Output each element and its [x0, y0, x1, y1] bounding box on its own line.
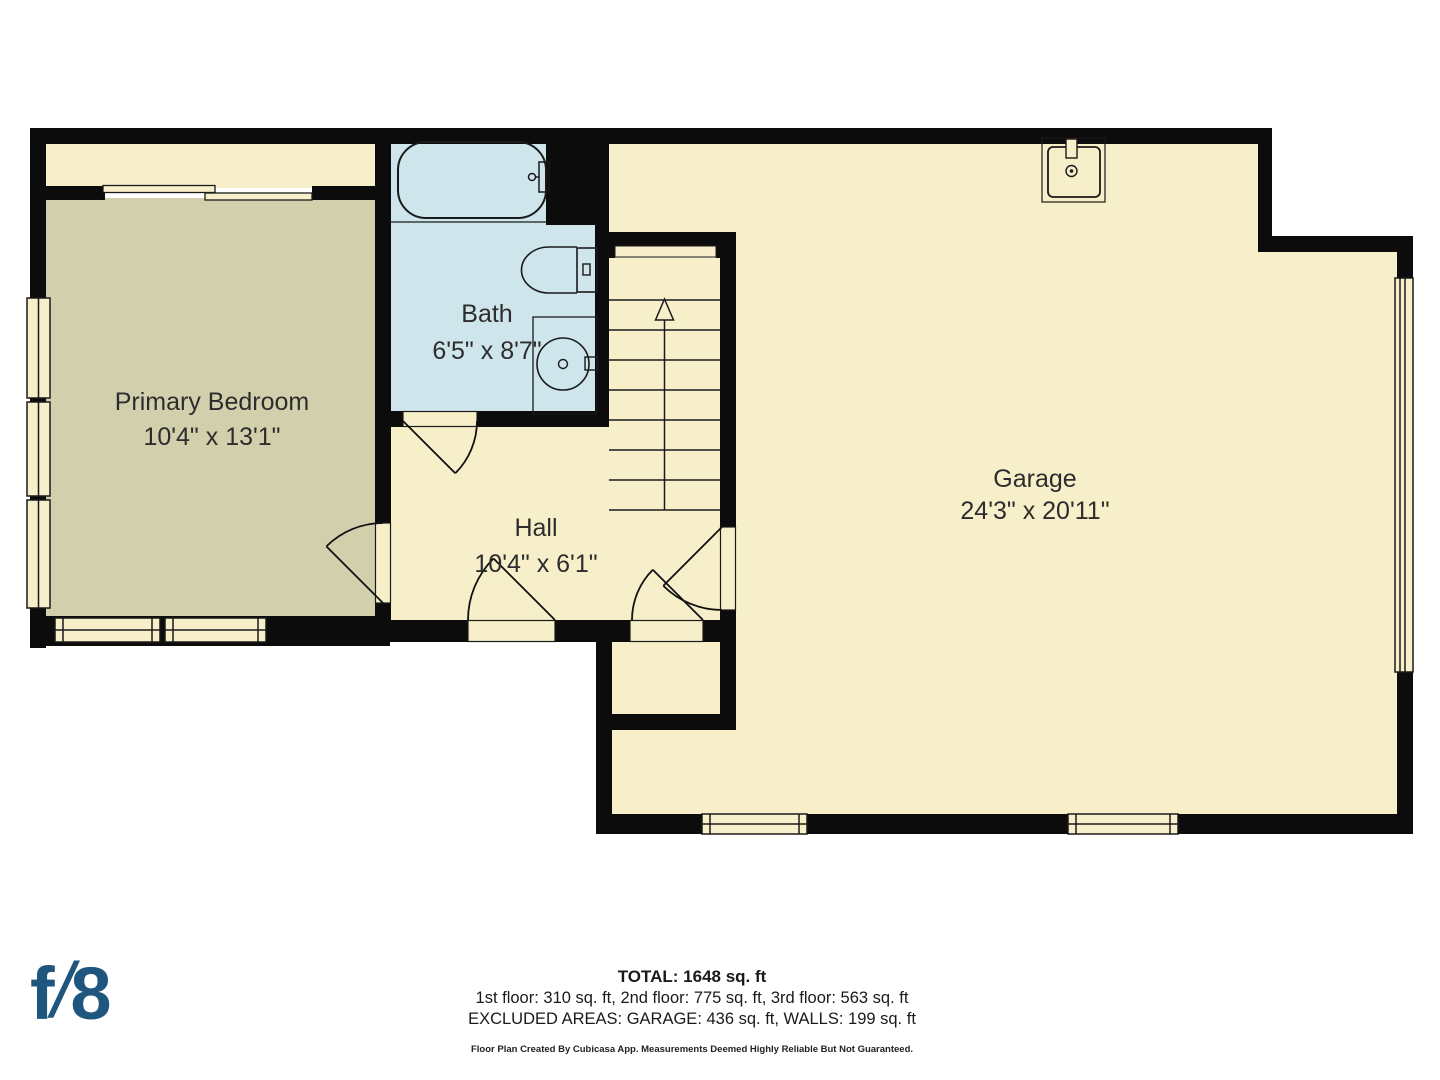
window-garage-bottom-2 [1068, 814, 1178, 834]
wall-stub-left [608, 246, 615, 258]
wall-tub-block [546, 128, 609, 225]
opening-hall-garage-door [721, 527, 736, 610]
opening-bath-door [403, 412, 477, 427]
window-bedroom-bottom-1 [55, 618, 160, 642]
window-bedroom-bottom-2 [165, 618, 266, 642]
dims-bath: 6'5" x 8'7" [432, 337, 541, 365]
summary-footer: TOTAL: 1648 sq. ft 1st floor: 310 sq. ft… [0, 966, 1384, 1055]
opening-exterior-door [468, 621, 555, 642]
opening-garage-entry-door [630, 621, 703, 642]
window-garage-right [1395, 278, 1413, 672]
floor-areas-text: 1st floor: 310 sq. ft, 2nd floor: 775 sq… [0, 988, 1384, 1009]
dims-garage: 24'3" x 20'11" [960, 497, 1109, 525]
wall-stub-right [716, 246, 736, 258]
wall-hall-garage [720, 232, 736, 730]
opening-bedroom-door [376, 523, 391, 603]
wall-alcove-bottom [596, 714, 736, 730]
window-bedroom-left-2 [27, 402, 50, 496]
label-bath: Bath [461, 300, 512, 328]
logo-slash: / [52, 946, 71, 1034]
garage-entry-alcove [612, 642, 720, 714]
window-bedroom-left-3 [27, 500, 50, 608]
window-garage-bottom-1 [702, 814, 807, 834]
wall-notch-vertical [1258, 128, 1272, 252]
opening-stair-top [615, 246, 716, 257]
disclaimer-text: Floor Plan Created By Cubicasa App. Meas… [0, 1044, 1384, 1055]
window-bedroom-left-1 [27, 298, 50, 398]
logo-f: f [30, 952, 52, 1035]
closet-area [46, 144, 375, 188]
wall-closet-rail-right [312, 186, 377, 200]
dims-primary-bedroom: 10'4" x 13'1" [143, 423, 280, 451]
dims-hall: 10'4" x 6'1" [474, 550, 597, 578]
label-garage: Garage [993, 465, 1076, 493]
logo-8: 8 [70, 952, 108, 1035]
wall-top [30, 128, 1272, 144]
total-area-text: TOTAL: 1648 sq. ft [0, 966, 1384, 988]
label-hall: Hall [514, 514, 557, 542]
wall-notch-horizontal [1258, 236, 1413, 252]
floor-plan: Primary Bedroom 10'4" x 13'1" Bath 6'5" … [0, 0, 1440, 960]
f8-logo: f/8 [30, 952, 108, 1034]
excluded-areas-text: EXCLUDED AREAS: GARAGE: 436 sq. ft, WALL… [0, 1009, 1384, 1030]
label-primary-bedroom: Primary Bedroom [115, 388, 310, 416]
wall-stair-top [596, 232, 736, 246]
